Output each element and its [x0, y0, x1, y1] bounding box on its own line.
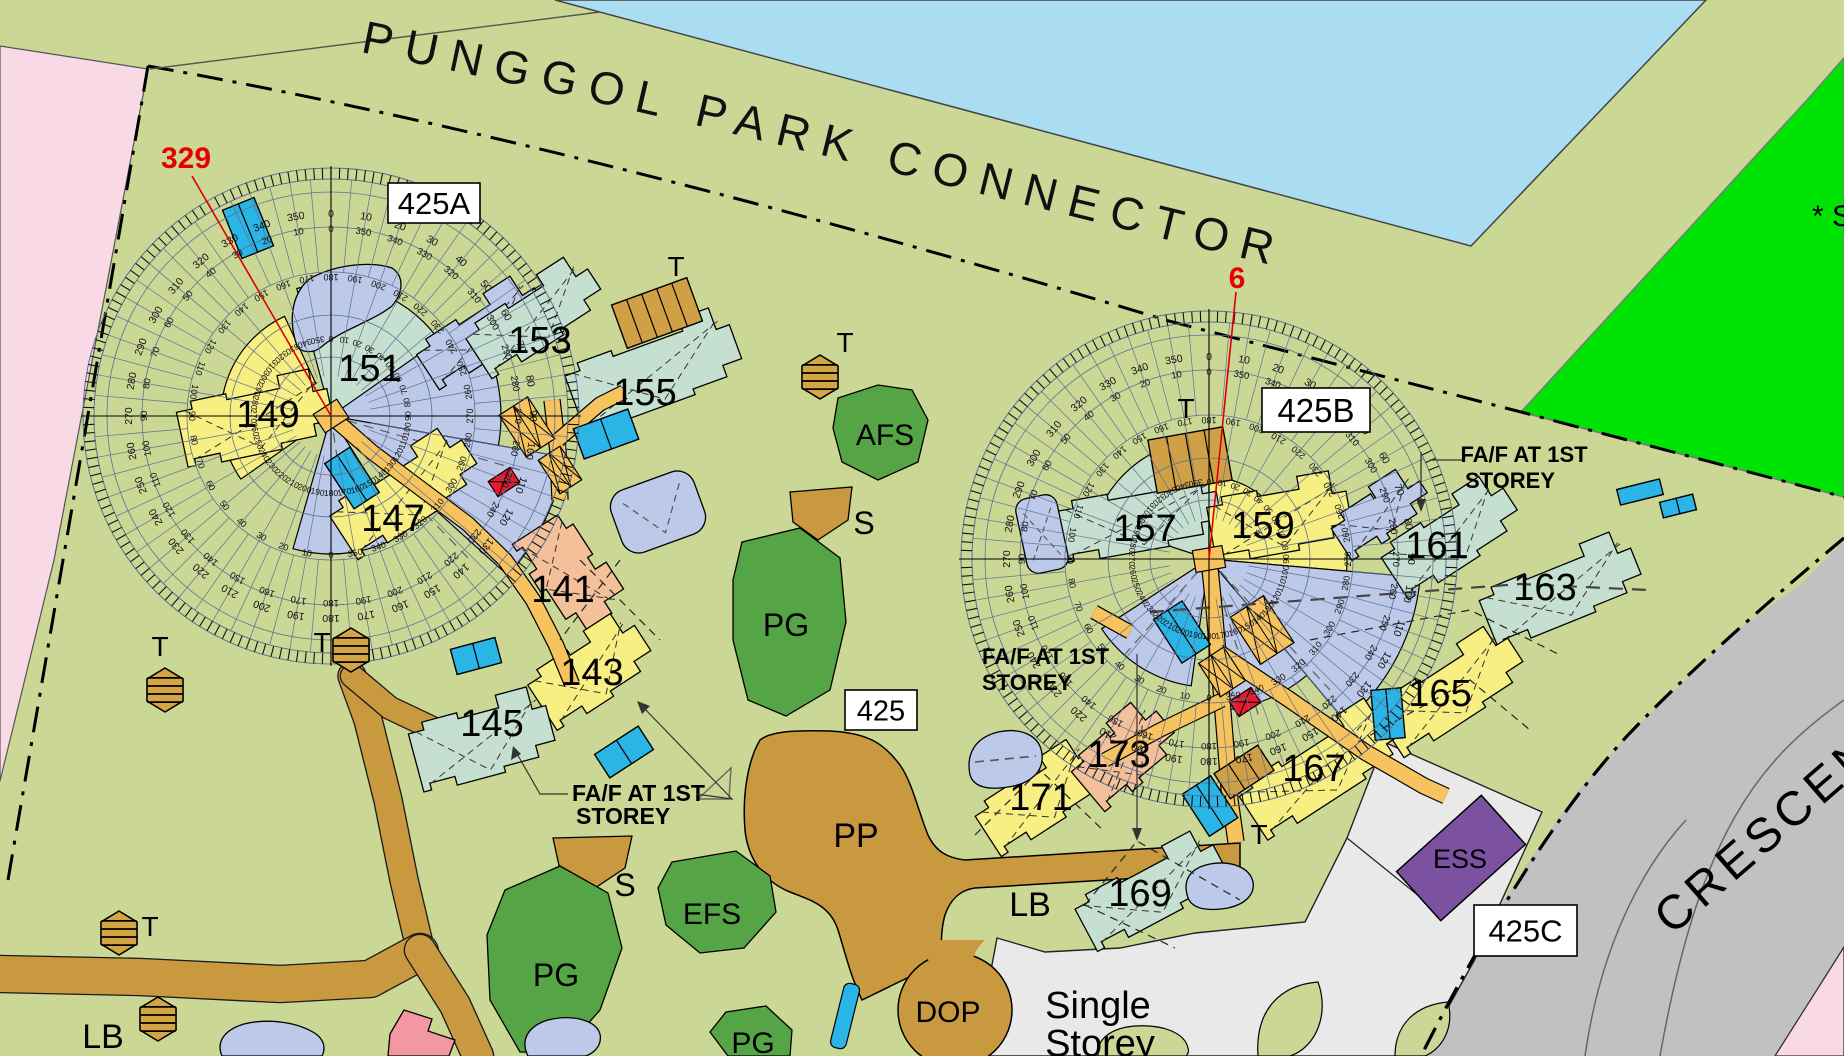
svg-text:90: 90	[403, 411, 413, 421]
svg-text:180: 180	[1201, 740, 1217, 751]
svg-text:180: 180	[1202, 631, 1216, 641]
svg-text:147: 147	[361, 498, 424, 540]
svg-text:173: 173	[1087, 734, 1150, 776]
svg-text:171: 171	[1009, 777, 1072, 819]
svg-text:80: 80	[1066, 577, 1078, 589]
svg-text:157: 157	[1113, 508, 1176, 550]
svg-text:180: 180	[324, 488, 338, 498]
svg-text:165: 165	[1408, 673, 1471, 715]
svg-text:90: 90	[1017, 554, 1028, 565]
svg-text:FA/F AT 1ST: FA/F AT 1ST	[1460, 442, 1588, 467]
svg-text:90: 90	[1281, 554, 1291, 564]
svg-text:0: 0	[1206, 351, 1212, 363]
svg-text:90: 90	[1065, 554, 1075, 564]
svg-text:155: 155	[613, 372, 676, 414]
svg-text:T: T	[836, 327, 853, 358]
svg-text:T: T	[141, 911, 158, 942]
svg-text:0: 0	[1206, 693, 1211, 703]
svg-text:LB: LB	[1009, 886, 1051, 924]
svg-text:169: 169	[1108, 873, 1171, 915]
svg-text:0: 0	[328, 550, 333, 560]
svg-text:425C: 425C	[1488, 914, 1562, 949]
svg-text:270: 270	[1001, 550, 1013, 568]
svg-text:0: 0	[1206, 367, 1211, 378]
svg-text:270: 270	[123, 407, 135, 425]
svg-text:10: 10	[339, 334, 350, 346]
svg-text:0: 0	[1206, 477, 1211, 487]
svg-text:80: 80	[141, 377, 154, 389]
svg-text:T: T	[151, 631, 168, 662]
svg-text:180: 180	[1201, 415, 1216, 425]
svg-text:T: T	[1250, 819, 1267, 850]
svg-text:PG: PG	[533, 957, 579, 993]
svg-text:270: 270	[1390, 551, 1401, 567]
svg-text:* S: * S	[1812, 200, 1844, 233]
svg-text:10: 10	[359, 210, 373, 224]
svg-text:180: 180	[323, 272, 338, 282]
svg-text:80: 80	[188, 434, 200, 446]
svg-text:10: 10	[1237, 353, 1251, 367]
svg-text:LB: LB	[82, 1018, 124, 1056]
svg-text:425B: 425B	[1277, 392, 1354, 429]
svg-text:Storey: Storey	[1045, 1023, 1155, 1056]
svg-text:80: 80	[523, 374, 537, 388]
svg-text:425A: 425A	[398, 186, 471, 221]
svg-text:145: 145	[460, 703, 523, 745]
svg-text:149: 149	[236, 394, 299, 436]
svg-text:STOREY: STOREY	[982, 670, 1072, 695]
svg-text:DOP: DOP	[915, 996, 980, 1029]
svg-text:161: 161	[1405, 525, 1468, 567]
svg-text:80: 80	[401, 397, 413, 408]
svg-text:10: 10	[1217, 477, 1228, 489]
svg-text:10: 10	[1179, 690, 1191, 702]
svg-text:180: 180	[323, 597, 339, 608]
svg-text:90: 90	[187, 411, 197, 421]
svg-text:0: 0	[328, 224, 333, 235]
svg-text:143: 143	[560, 652, 623, 694]
svg-text:PG: PG	[763, 607, 809, 643]
svg-text:AFS: AFS	[856, 419, 914, 452]
svg-text:153: 153	[508, 320, 571, 362]
svg-text:S: S	[614, 867, 635, 903]
svg-text:EFS: EFS	[683, 898, 741, 931]
svg-text:STOREY: STOREY	[1465, 468, 1555, 493]
svg-text:T: T	[667, 251, 684, 282]
svg-text:10: 10	[301, 547, 313, 559]
svg-text:151: 151	[338, 348, 401, 390]
svg-text:PP: PP	[833, 817, 878, 855]
svg-text:STOREY: STOREY	[576, 803, 670, 829]
svg-text:ESS: ESS	[1433, 844, 1487, 874]
svg-text:167: 167	[1282, 748, 1345, 790]
svg-text:T: T	[313, 627, 330, 658]
svg-text:S: S	[853, 505, 874, 541]
svg-text:270: 270	[465, 408, 475, 423]
svg-text:90: 90	[139, 411, 150, 422]
svg-text:425: 425	[857, 695, 905, 727]
svg-text:0: 0	[328, 208, 334, 220]
svg-text:PG: PG	[731, 1027, 774, 1056]
svg-text:90: 90	[527, 410, 539, 422]
svg-text:180: 180	[322, 612, 340, 624]
svg-text:270: 270	[512, 408, 523, 424]
svg-text:80: 80	[1019, 520, 1032, 532]
svg-text:270: 270	[1343, 551, 1353, 566]
svg-text:163: 163	[1513, 567, 1576, 609]
svg-text:141: 141	[531, 569, 594, 611]
svg-text:FA/F AT 1ST: FA/F AT 1ST	[982, 644, 1110, 669]
svg-text:159: 159	[1231, 505, 1294, 547]
svg-text:270: 270	[1127, 552, 1137, 566]
svg-text:180: 180	[1200, 755, 1218, 767]
svg-text:0: 0	[328, 334, 333, 344]
svg-text:10: 10	[292, 226, 304, 239]
svg-text:T: T	[1177, 393, 1194, 424]
svg-text:329: 329	[161, 142, 211, 175]
svg-text:Single: Single	[1045, 985, 1151, 1027]
svg-text:10: 10	[1170, 369, 1182, 382]
